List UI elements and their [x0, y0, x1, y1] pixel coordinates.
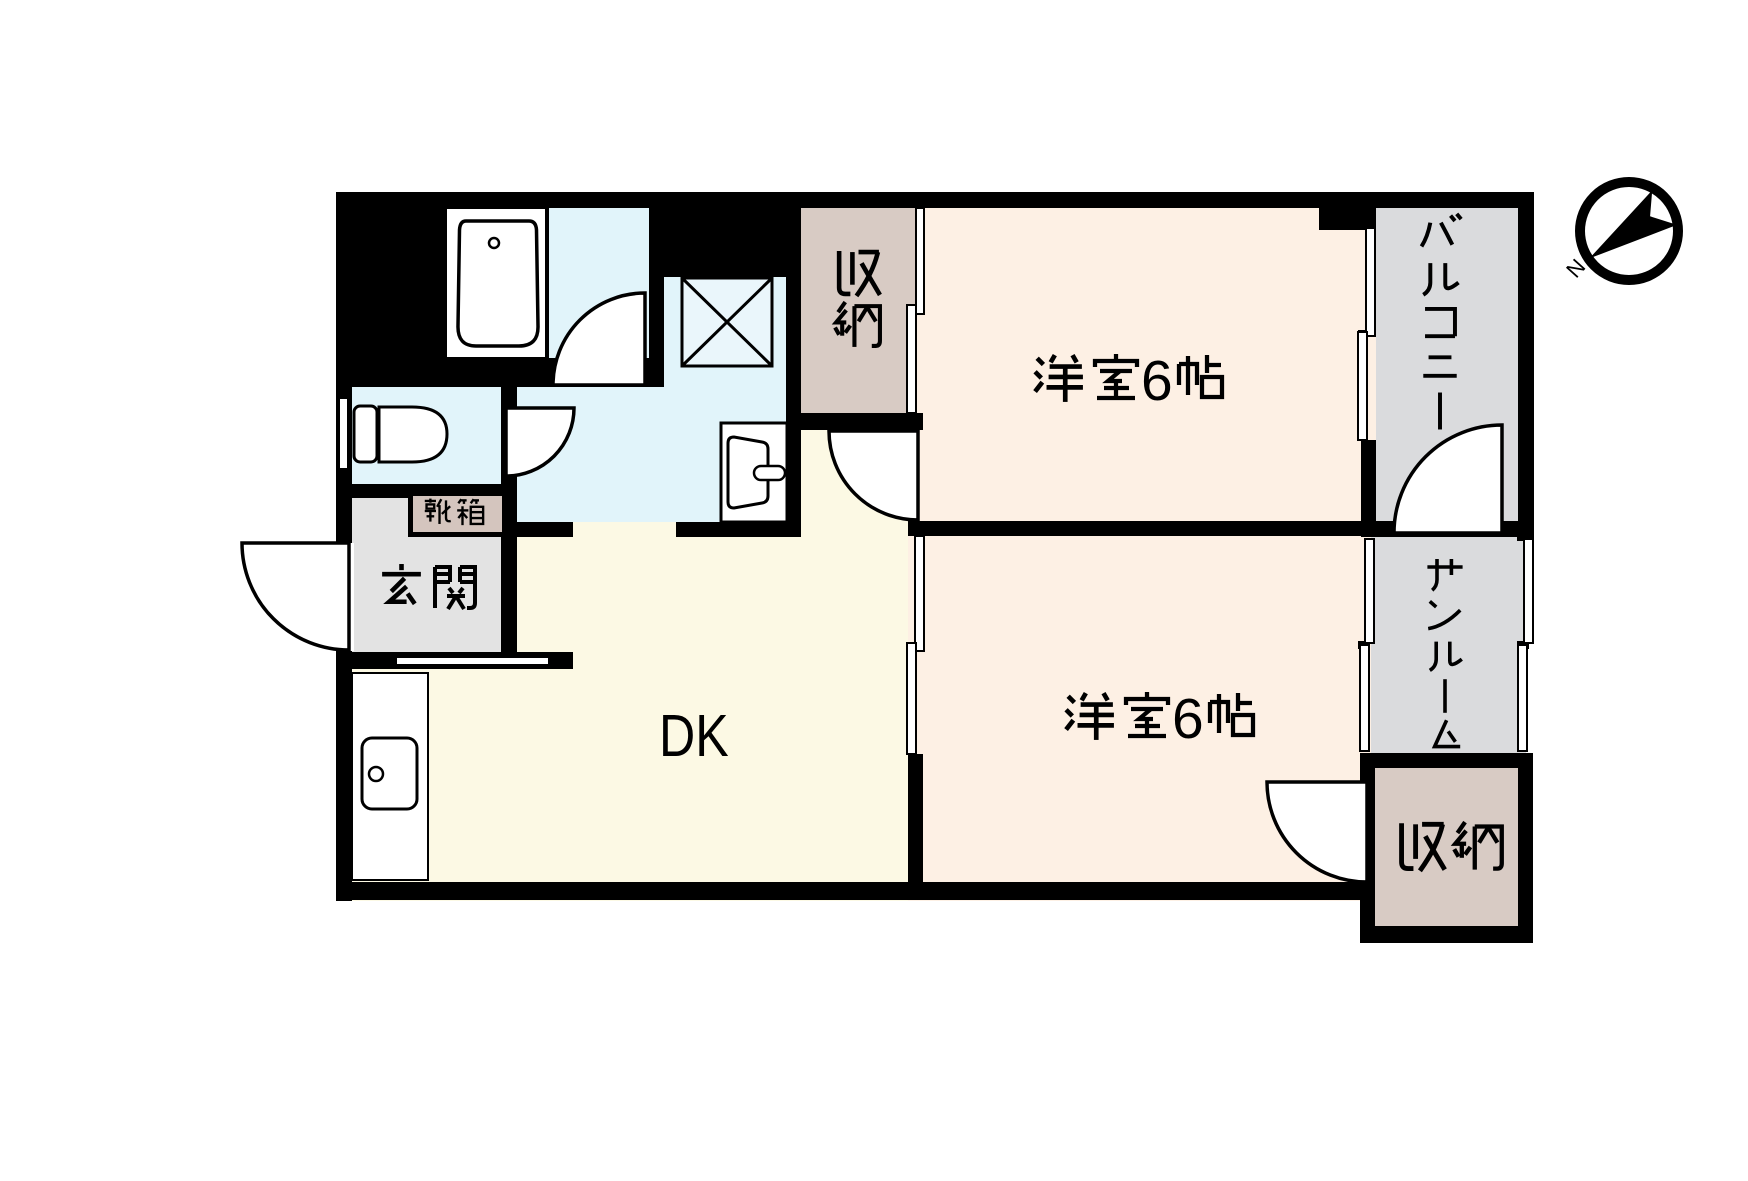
svg-text:DK: DK [659, 702, 729, 769]
svg-text:6: 6 [1141, 349, 1173, 413]
svg-text:6: 6 [1172, 687, 1204, 751]
